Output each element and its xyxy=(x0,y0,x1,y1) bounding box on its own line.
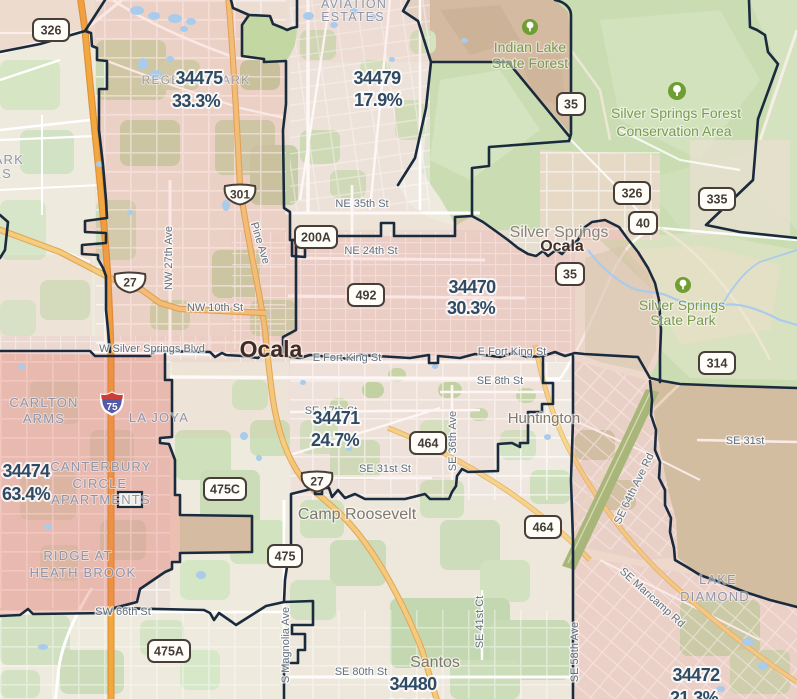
svg-text:Camp Roosevelt: Camp Roosevelt xyxy=(298,506,417,523)
svg-text:35: 35 xyxy=(563,268,577,282)
svg-text:SE 8th St: SE 8th St xyxy=(477,375,523,387)
svg-text:34471: 34471 xyxy=(312,408,360,428)
svg-text:475C: 475C xyxy=(210,483,240,497)
svg-text:Silver Springs: Silver Springs xyxy=(639,297,725,313)
svg-text:ES: ES xyxy=(0,166,12,181)
svg-text:34480: 34480 xyxy=(389,674,437,694)
svg-text:Ocala: Ocala xyxy=(540,238,584,255)
svg-text:Santos: Santos xyxy=(410,654,460,671)
svg-text:SE 36th Ave: SE 36th Ave xyxy=(447,411,459,471)
svg-text:34474: 34474 xyxy=(2,461,50,481)
svg-text:301: 301 xyxy=(230,187,250,201)
svg-text:326: 326 xyxy=(622,187,643,201)
svg-text:33.3%: 33.3% xyxy=(172,91,221,111)
svg-text:314: 314 xyxy=(707,357,728,371)
svg-text:34475: 34475 xyxy=(175,68,223,88)
svg-text:CARLTON: CARLTON xyxy=(9,395,78,410)
svg-text:63.4%: 63.4% xyxy=(2,484,51,504)
svg-text:CANTERBURY: CANTERBURY xyxy=(50,459,151,474)
svg-text:30.3%: 30.3% xyxy=(447,298,496,318)
svg-text:NW 27th Ave: NW 27th Ave xyxy=(163,226,175,290)
svg-text:DIAMOND: DIAMOND xyxy=(680,589,750,604)
svg-text:State Forest: State Forest xyxy=(492,55,568,71)
svg-text:State Park: State Park xyxy=(650,312,716,328)
svg-text:SE 31st St: SE 31st St xyxy=(359,463,411,475)
svg-text:Ocala: Ocala xyxy=(240,336,303,362)
svg-text:27: 27 xyxy=(123,275,137,289)
svg-text:Silver Springs Forest: Silver Springs Forest xyxy=(611,105,741,121)
svg-text:335: 335 xyxy=(707,193,728,207)
svg-text:40: 40 xyxy=(636,217,650,231)
svg-text:21.3%: 21.3% xyxy=(670,688,719,699)
svg-text:75: 75 xyxy=(106,402,118,413)
svg-text:34472: 34472 xyxy=(672,665,720,685)
svg-text:CIRCLE: CIRCLE xyxy=(73,476,128,491)
svg-text:34470: 34470 xyxy=(448,277,496,297)
svg-text:24.7%: 24.7% xyxy=(311,430,360,450)
svg-text:200A: 200A xyxy=(301,231,331,245)
svg-text:E Fort King St: E Fort King St xyxy=(313,352,381,364)
svg-text:APARTMENTS: APARTMENTS xyxy=(51,492,151,507)
svg-text:E Fort King St: E Fort King St xyxy=(478,346,546,358)
svg-text:492: 492 xyxy=(356,289,377,303)
svg-text:RIDGE AT: RIDGE AT xyxy=(43,548,112,563)
svg-text:326: 326 xyxy=(41,24,62,38)
svg-text:NE 24th St: NE 24th St xyxy=(344,245,397,257)
svg-text:LA JOYA: LA JOYA xyxy=(129,410,189,425)
svg-text:464: 464 xyxy=(533,521,554,535)
svg-text:NE 35th St: NE 35th St xyxy=(335,198,388,210)
svg-text:LAKE: LAKE xyxy=(699,572,737,587)
svg-text:ARMS: ARMS xyxy=(23,411,65,426)
svg-text:Huntington: Huntington xyxy=(508,410,581,427)
svg-text:464: 464 xyxy=(418,437,439,451)
svg-text:Conservation Area: Conservation Area xyxy=(616,123,731,139)
svg-text:W Silver Springs Blvd: W Silver Springs Blvd xyxy=(99,343,205,355)
svg-text:475: 475 xyxy=(275,550,296,564)
svg-text:Indian Lake: Indian Lake xyxy=(494,39,567,55)
svg-text:17.9%: 17.9% xyxy=(354,90,403,110)
svg-text:SE 41st Ct: SE 41st Ct xyxy=(474,596,486,649)
svg-text:S Magnolia Ave: S Magnolia Ave xyxy=(280,607,292,683)
svg-text:27: 27 xyxy=(310,474,324,488)
svg-text:475A: 475A xyxy=(154,645,184,659)
svg-text:SE 31st: SE 31st xyxy=(726,435,765,447)
svg-text:HEATH BROOK: HEATH BROOK xyxy=(30,565,137,580)
svg-text:ARK: ARK xyxy=(0,152,24,167)
svg-text:34479: 34479 xyxy=(353,68,401,88)
svg-text:SE 58th Ave: SE 58th Ave xyxy=(569,622,581,682)
svg-text:SE 80th St: SE 80th St xyxy=(335,666,388,678)
svg-text:ESTATES: ESTATES xyxy=(321,10,385,24)
svg-text:35: 35 xyxy=(564,98,578,112)
svg-text:SW 66th St: SW 66th St xyxy=(95,606,151,618)
svg-text:NW 10th St: NW 10th St xyxy=(187,302,243,314)
